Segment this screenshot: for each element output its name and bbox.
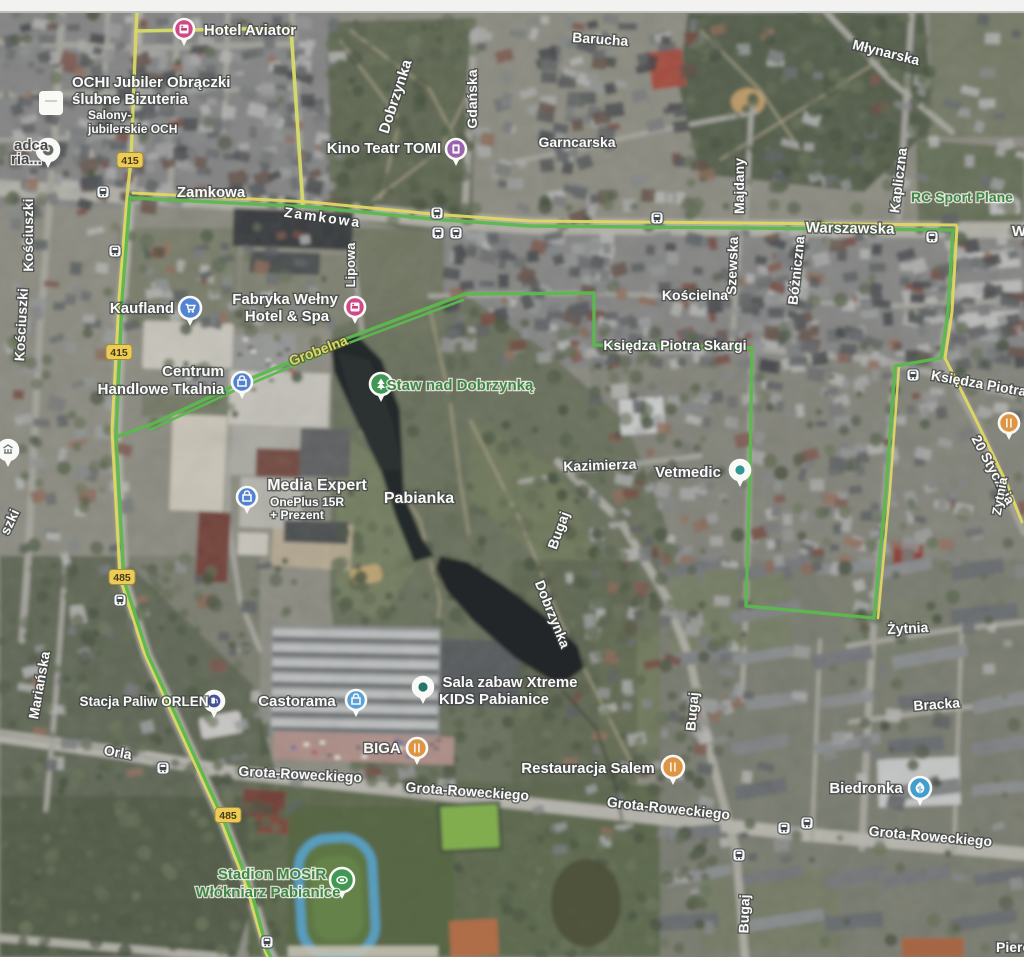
svg-text:W: W	[1012, 223, 1024, 240]
svg-text:Bugaj: Bugaj	[682, 691, 701, 731]
svg-text:Włókniarz Pabianice: Włókniarz Pabianice	[195, 884, 340, 901]
svg-text:OnePlus 15R: OnePlus 15R	[270, 495, 344, 509]
svg-text:OCHI Jubiler Obrączki: OCHI Jubiler Obrączki	[72, 74, 230, 91]
svg-text:Bracka: Bracka	[913, 694, 961, 713]
svg-text:Sala zabaw Xtreme: Sala zabaw Xtreme	[442, 674, 577, 691]
svg-text:Handlowe Tkalnia: Handlowe Tkalnia	[98, 381, 225, 398]
svg-text:Vetmedic: Vetmedic	[655, 464, 721, 481]
svg-text:415: 415	[121, 155, 139, 167]
svg-text:Żytnia: Żytnia	[887, 619, 929, 637]
svg-text:BIGA: BIGA	[363, 740, 401, 757]
svg-text:Księdza Piotra Skargi: Księdza Piotra Skargi	[603, 337, 746, 353]
svg-text:Bugaj: Bugaj	[735, 894, 752, 933]
svg-text:485: 485	[219, 810, 237, 822]
svg-text:jubilerskie OCH: jubilerskie OCH	[87, 122, 177, 136]
svg-text:Lipowa: Lipowa	[343, 242, 358, 288]
svg-text:ria...: ria...	[11, 151, 42, 168]
svg-text:Zamkowa: Zamkowa	[177, 184, 246, 201]
svg-text:Media Expert: Media Expert	[267, 477, 367, 494]
svg-text:Stacja Paliw ORLEN: Stacja Paliw ORLEN	[79, 694, 208, 709]
svg-text:Kościuszki: Kościuszki	[20, 198, 36, 271]
svg-text:Kaufland: Kaufland	[110, 300, 174, 317]
svg-text:Centrum: Centrum	[162, 363, 224, 380]
svg-text:Kościelna: Kościelna	[662, 287, 728, 303]
svg-text:RC Sport Plane: RC Sport Plane	[911, 189, 1013, 205]
svg-text:Pierogar: Pierogar	[996, 939, 1024, 955]
svg-text:Warszawska: Warszawska	[806, 219, 896, 238]
svg-text:415: 415	[110, 347, 128, 359]
svg-text:485: 485	[113, 572, 131, 584]
svg-text:ślubne Bizuteria: ślubne Bizuteria	[72, 91, 189, 108]
svg-text:+ Prezent: + Prezent	[270, 508, 324, 522]
svg-text:Hotel Aviator: Hotel Aviator	[204, 22, 296, 39]
svg-text:Kino Teatr TOMI: Kino Teatr TOMI	[327, 140, 441, 157]
svg-text:Salony-: Salony-	[88, 108, 131, 122]
svg-text:Majdany: Majdany	[731, 158, 747, 214]
svg-text:Hotel & Spa: Hotel & Spa	[245, 308, 330, 325]
svg-text:KIDS Pabianice: KIDS Pabianice	[439, 691, 549, 708]
svg-text:Gdańska: Gdańska	[464, 69, 480, 128]
svg-text:Biedronka: Biedronka	[829, 780, 903, 797]
svg-text:Kazimierza: Kazimierza	[563, 456, 637, 475]
svg-text:Pabianka: Pabianka	[384, 490, 454, 507]
svg-text:Fabryka Wełny: Fabryka Wełny	[232, 291, 338, 308]
svg-text:Stadion MOSiR: Stadion MOSiR	[218, 866, 327, 883]
svg-text:Garncarska: Garncarska	[538, 134, 615, 150]
svg-text:Castorama: Castorama	[258, 693, 336, 710]
svg-text:Restauracja Salem: Restauracja Salem	[521, 760, 654, 777]
svg-text:Staw nad Dobrzynką: Staw nad Dobrzynką	[387, 377, 534, 394]
